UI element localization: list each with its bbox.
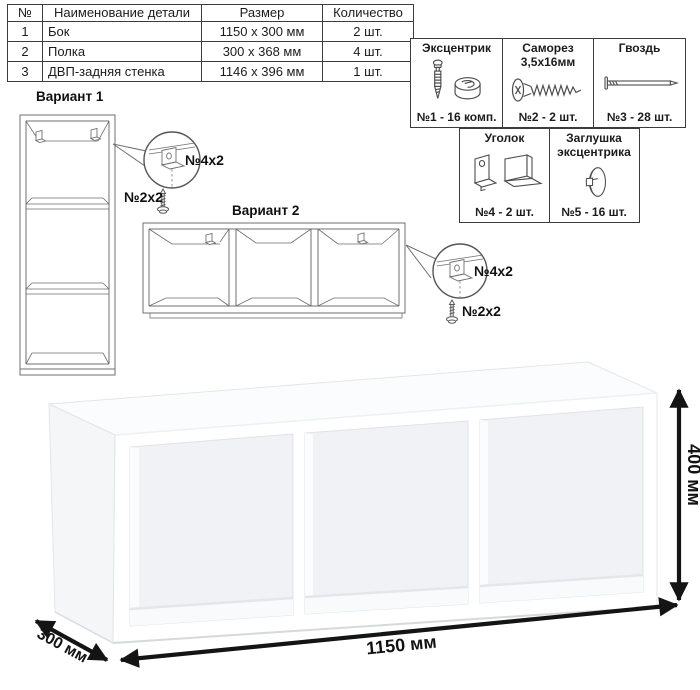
shelf-unit-render xyxy=(49,362,657,643)
col-header-name: Наименование детали xyxy=(43,5,202,22)
dimension-height: 400 мм xyxy=(679,390,700,600)
cell-name: Полка xyxy=(43,42,202,62)
hardware-count: №1 - 16 комп. xyxy=(417,110,497,124)
cell-size: 300 x 368 мм xyxy=(202,42,323,62)
bracket-qty-label: №4х2 xyxy=(474,263,513,279)
compartment-1 xyxy=(130,434,293,626)
height-label: 400 мм xyxy=(684,444,700,506)
hardware-item-screw: Саморез 3,5х16мм №2 - 2 шт. xyxy=(502,38,595,128)
hardware-count: №2 - 2 шт. xyxy=(519,110,578,124)
hardware-title: Саморез 3,5х16мм xyxy=(505,42,592,70)
hardware-count: №3 - 28 шт. xyxy=(607,110,673,124)
cam-cap-icon xyxy=(552,160,637,205)
nail-icon xyxy=(596,56,683,110)
hardware-item-nail: Гвоздь №3 - 28 шт. xyxy=(593,38,686,128)
parts-table: № Наименование детали Размер Количество … xyxy=(7,4,414,82)
bracket-mark-right xyxy=(91,129,101,141)
variant2-cabinet-outline xyxy=(143,223,405,318)
screw-icon xyxy=(505,70,592,110)
cell-qty: 2 шт. xyxy=(323,22,414,42)
cell-name: Бок xyxy=(43,22,202,42)
cell-num: 3 xyxy=(8,62,43,82)
hardware-count: №5 - 16 шт. xyxy=(561,205,627,219)
col-header-size: Размер xyxy=(202,5,323,22)
cell-num: 1 xyxy=(8,22,43,42)
cell-name: ДВП-задняя стенка xyxy=(43,62,202,82)
hardware-item-cam-cap: Заглушка эксцентрика №5 - 16 шт. xyxy=(549,128,640,223)
cam-lock-icon xyxy=(413,56,500,110)
variant2-callout: №4х2 №2х2 xyxy=(433,244,513,323)
col-header-num: № xyxy=(8,5,43,22)
compartment-2 xyxy=(305,421,468,614)
product-render: 1150 мм 300 мм 400 мм xyxy=(0,360,700,690)
screw-qty-label: №2х2 xyxy=(462,303,501,319)
assembly-instruction-sheet: { "parts_table": { "headers": { "num": "… xyxy=(0,0,700,690)
compartment-3 xyxy=(480,407,643,603)
hardware-box-top-row: Эксцентрик №1 - 16 комп. xyxy=(410,38,686,128)
cell-num: 2 xyxy=(8,42,43,62)
hardware-title: Уголок xyxy=(485,132,525,146)
variant1-title: Вариант 1 xyxy=(36,89,103,104)
hardware-title: Гвоздь xyxy=(619,42,661,56)
hardware-item-cam-lock: Эксцентрик №1 - 16 комп. xyxy=(410,38,503,128)
cell-size: 1150 x 300 мм xyxy=(202,22,323,42)
cell-qty: 1 шт. xyxy=(323,62,414,82)
cell-qty: 4 шт. xyxy=(323,42,414,62)
callout-leader xyxy=(406,245,436,278)
bracket-qty-label: №4х2 xyxy=(185,152,224,168)
table-row: 2 Полка 300 x 368 мм 4 шт. xyxy=(8,42,414,62)
cell-size: 1146 x 396 мм xyxy=(202,62,323,82)
hardware-title: Эксцентрик xyxy=(422,42,491,56)
bracket-mark-left xyxy=(36,131,46,143)
bracket-mark-right xyxy=(358,233,368,244)
depth-label: 300 мм xyxy=(34,625,90,666)
table-row: 1 Бок 1150 x 300 мм 2 шт. xyxy=(8,22,414,42)
hardware-title: Заглушка эксцентрика xyxy=(552,132,637,160)
table-row: 3 ДВП-задняя стенка 1146 x 396 мм 1 шт. xyxy=(8,62,414,82)
parts-table-header-row: № Наименование детали Размер Количество xyxy=(8,5,414,22)
col-header-qty: Количество xyxy=(323,5,414,22)
variant2-drawing: №4х2 №2х2 xyxy=(140,196,560,336)
bracket-mark-left xyxy=(206,234,216,245)
screw-detail-icon xyxy=(447,300,458,323)
variant1-cabinet-outline xyxy=(20,115,115,375)
